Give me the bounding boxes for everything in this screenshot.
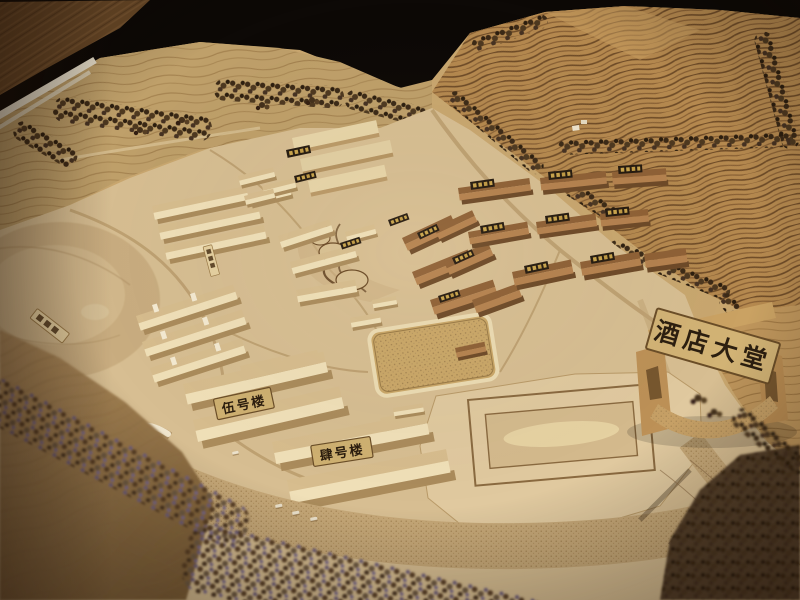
model-photo-canvas: 酒店大堂 伍号楼 肆号楼 <box>0 0 800 600</box>
model-photo: 酒店大堂 伍号楼 肆号楼 <box>0 0 800 600</box>
left-edge-shade <box>0 0 800 600</box>
